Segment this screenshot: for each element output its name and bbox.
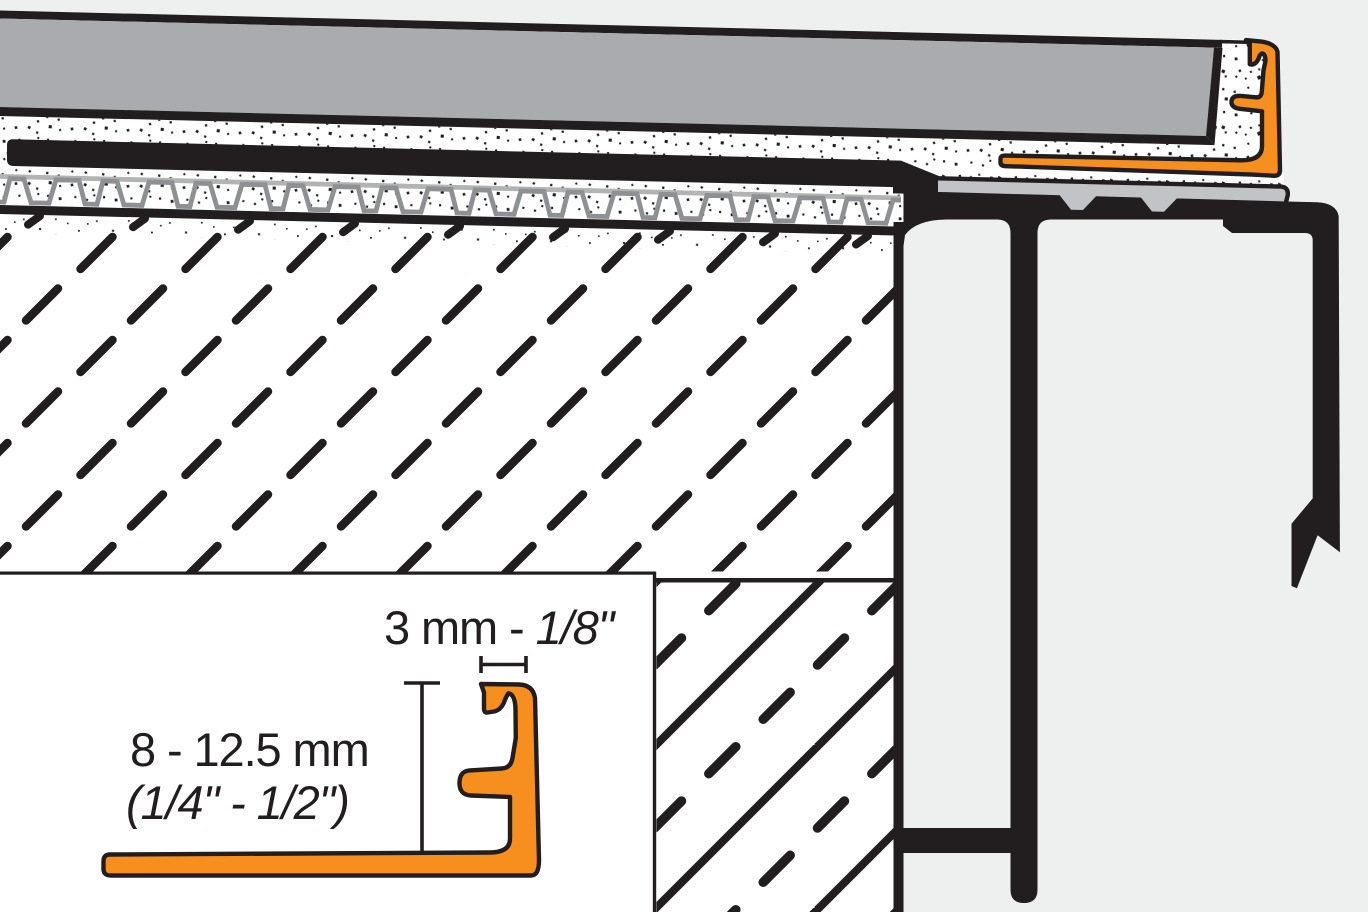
svg-text:(1/4" - 1/2"): (1/4" - 1/2") <box>126 776 349 829</box>
svg-text:8 - 12.5 mm: 8 - 12.5 mm <box>130 723 369 776</box>
svg-text:3 mm - 1/8": 3 mm - 1/8" <box>384 601 617 654</box>
